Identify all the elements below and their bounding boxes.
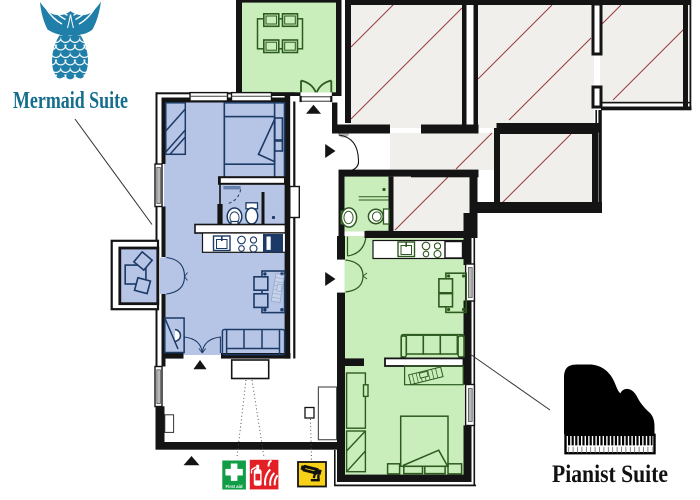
svg-text:Mermaid Suite: Mermaid Suite [13, 88, 128, 114]
svg-text:First aid: First aid [225, 484, 242, 489]
svg-text:Pianist Suite: Pianist Suite [552, 461, 668, 488]
